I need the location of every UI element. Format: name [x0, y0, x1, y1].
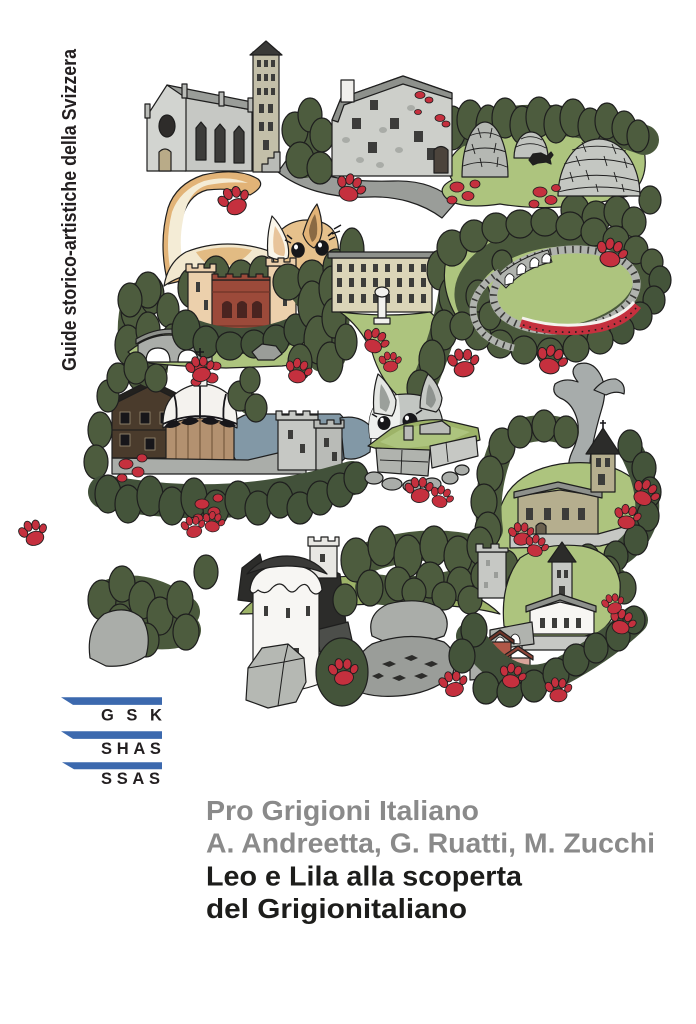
svg-text:A. Andreetta, G. Ruatti, M. Zu: A. Andreetta, G. Ruatti, M. Zucchi: [206, 828, 655, 859]
svg-text:Leo e Lila alla scoperta: Leo e Lila alla scoperta: [206, 860, 522, 891]
svg-text:Pro Grigioni Italiano: Pro Grigioni Italiano: [206, 795, 479, 826]
svg-text:GSK: GSK: [101, 706, 175, 724]
svg-text:del Grigionitaliano: del Grigionitaliano: [206, 893, 467, 924]
svg-text:Guide storico-artistiche della: Guide storico-artistiche della Svizzera: [58, 48, 81, 371]
svg-text:SSAS: SSAS: [101, 770, 165, 788]
svg-text:SHAS: SHAS: [101, 740, 166, 758]
